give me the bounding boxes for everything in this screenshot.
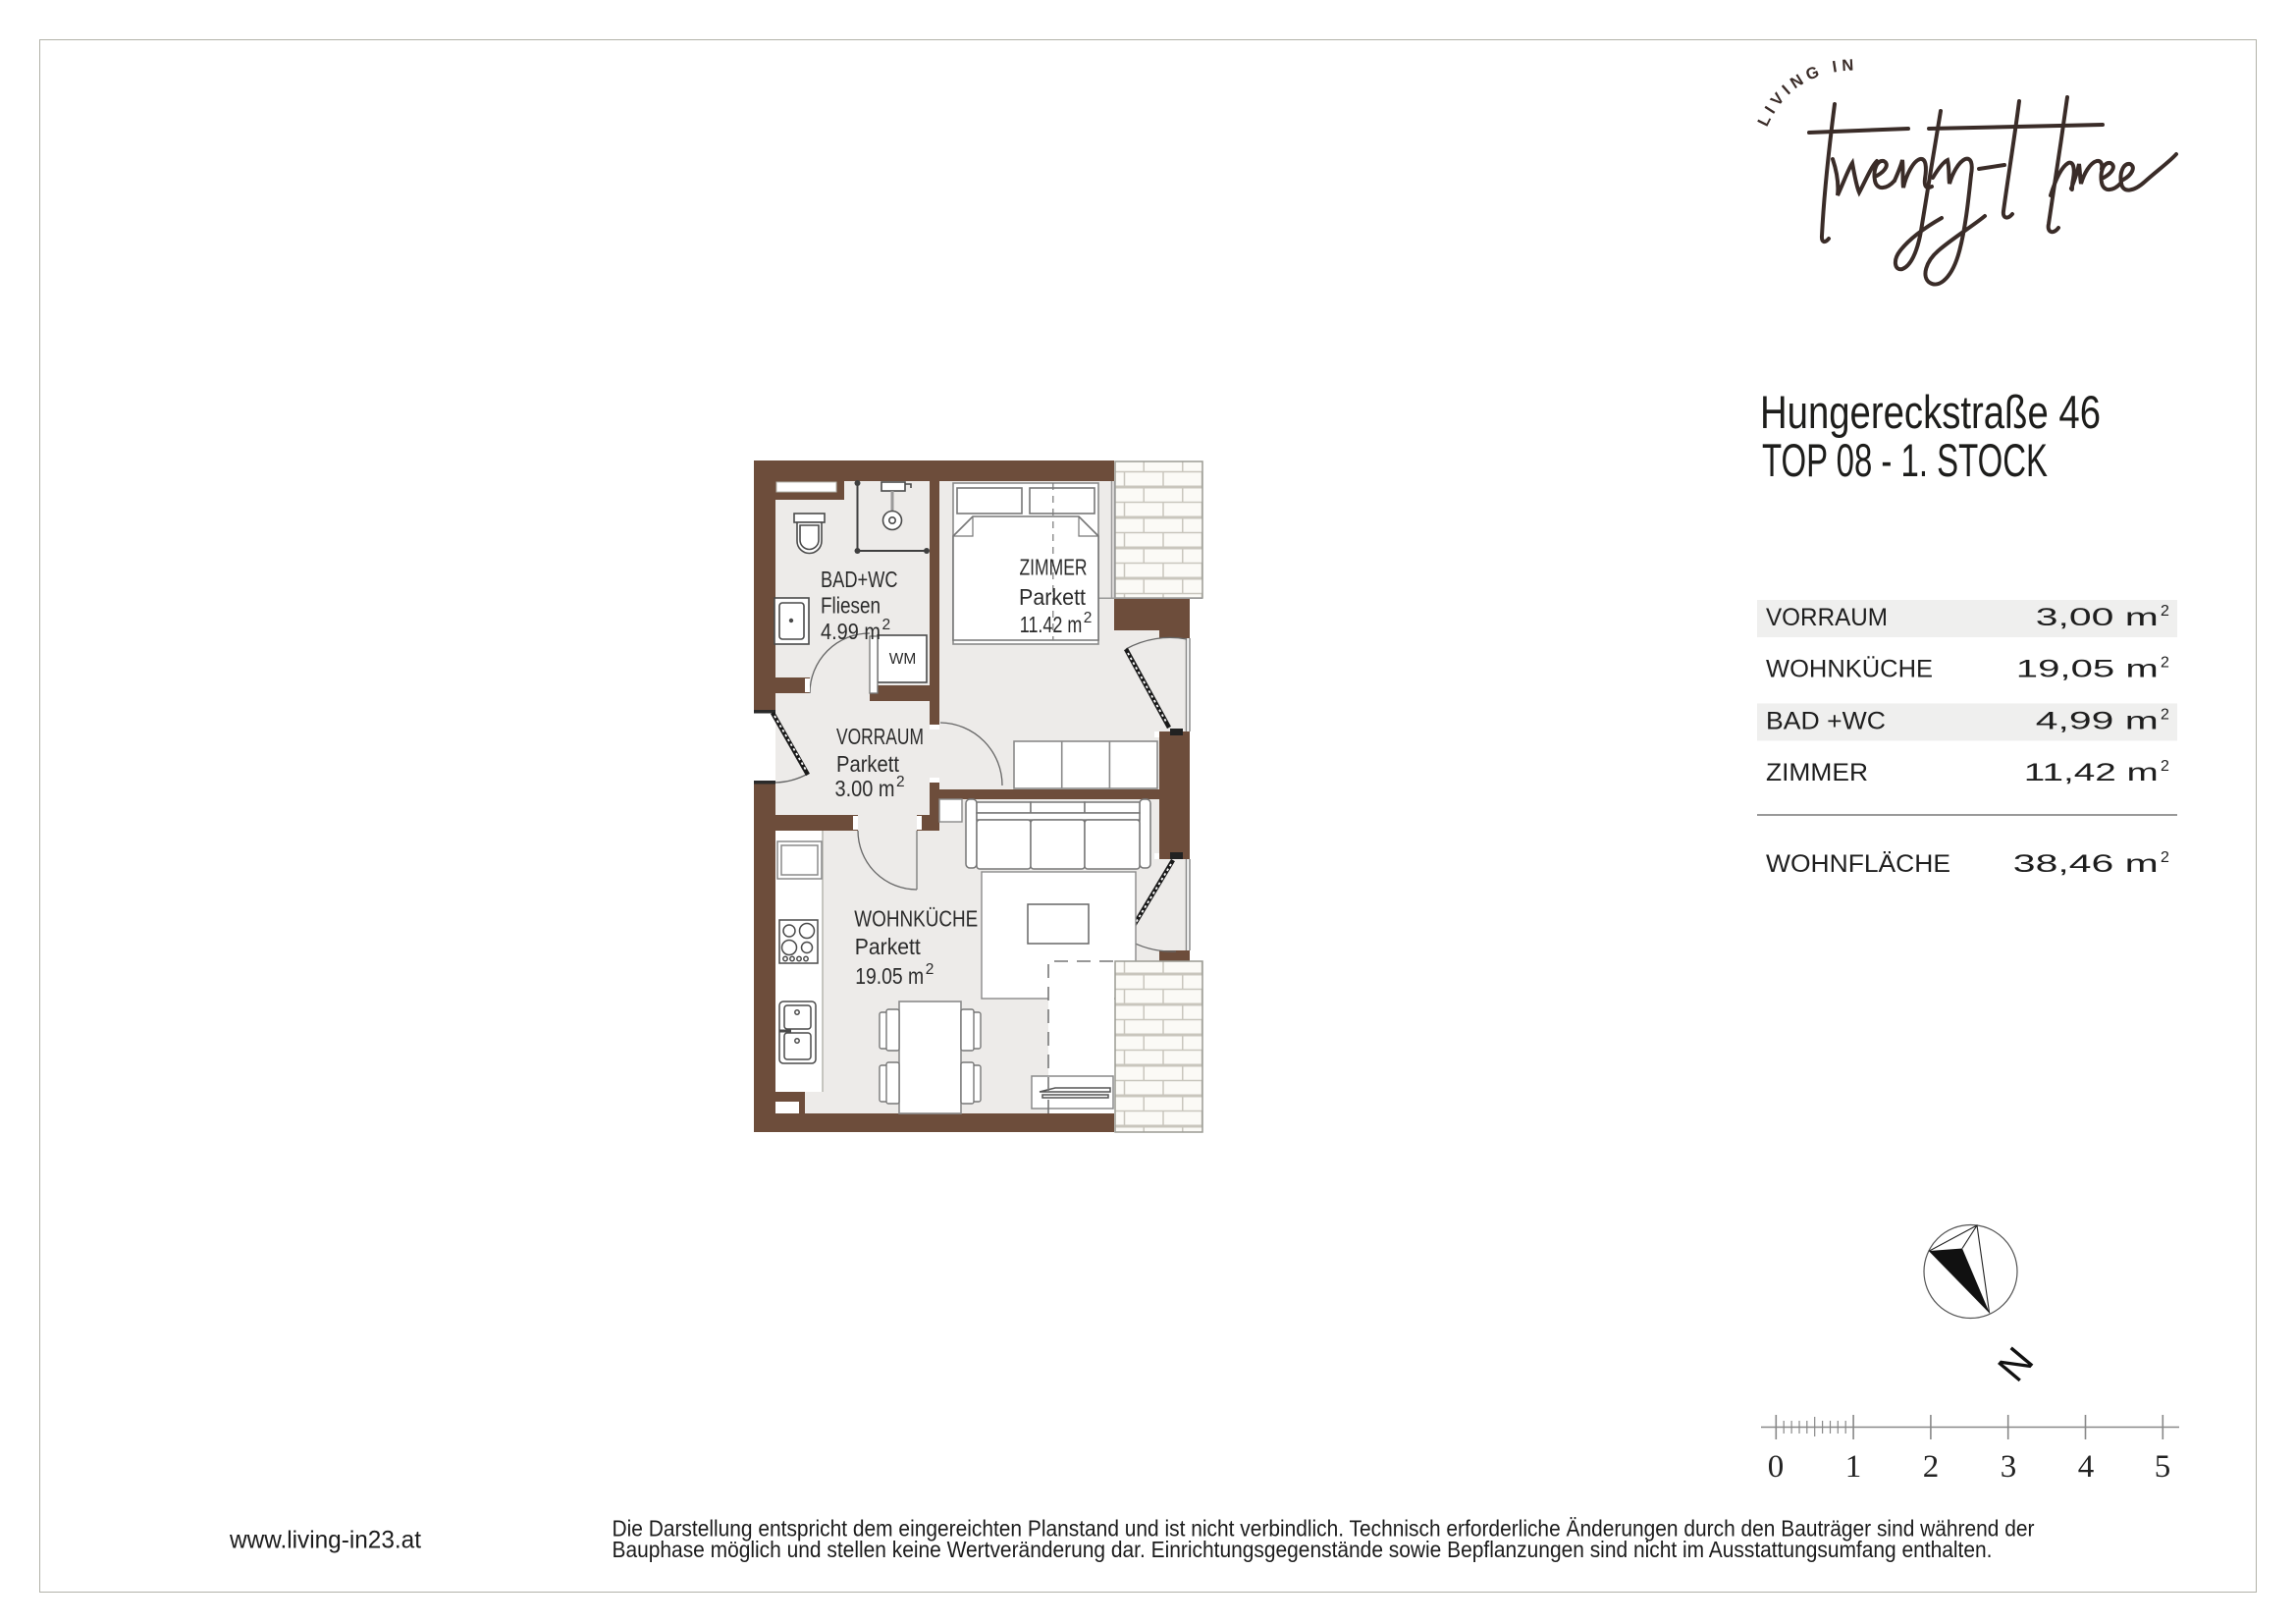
svg-text:2: 2 <box>1923 1449 1940 1485</box>
svg-text:0: 0 <box>1768 1449 1785 1485</box>
svg-text:N: N <box>1989 1338 2042 1389</box>
svg-text:11.42 m: 11.42 m <box>1020 612 1083 637</box>
svg-text:Parkett: Parkett <box>855 934 921 959</box>
svg-text:2: 2 <box>882 617 891 633</box>
svg-text:2: 2 <box>2161 849 2169 866</box>
svg-text:BAD +WC: BAD +WC <box>1766 707 1886 734</box>
svg-text:WM: WM <box>889 651 917 668</box>
svg-text:4: 4 <box>2078 1449 2095 1485</box>
svg-text:VORRAUM: VORRAUM <box>1766 604 1888 631</box>
svg-text:4.99 m: 4.99 m <box>821 619 881 644</box>
svg-text:4,99 m: 4,99 m <box>2036 707 2159 734</box>
svg-text:2: 2 <box>2161 706 2169 723</box>
svg-text:Hungereckstraße 46: Hungereckstraße 46 <box>1760 386 2101 438</box>
svg-text:Bauphase möglich und stellen k: Bauphase möglich und stellen keine Wertv… <box>613 1537 1993 1562</box>
svg-text:WOHNFLÄCHE: WOHNFLÄCHE <box>1766 850 1950 878</box>
svg-text:Parkett: Parkett <box>1019 584 1086 610</box>
svg-text:5: 5 <box>2155 1449 2171 1485</box>
svg-text:Fliesen: Fliesen <box>821 593 881 619</box>
svg-text:11,42 m: 11,42 m <box>2024 759 2159 786</box>
svg-text:2: 2 <box>2161 603 2169 620</box>
svg-text:VORRAUM: VORRAUM <box>836 724 924 749</box>
svg-text:Parkett: Parkett <box>836 751 899 777</box>
svg-text:WOHNKÜCHE: WOHNKÜCHE <box>1766 656 1933 683</box>
svg-text:ZIMMER: ZIMMER <box>1020 555 1088 580</box>
svg-text:1: 1 <box>1845 1449 1862 1485</box>
svg-text:2: 2 <box>1084 610 1093 626</box>
svg-text:www.living-in23.at: www.living-in23.at <box>229 1526 421 1553</box>
svg-text:3,00 m: 3,00 m <box>2036 604 2159 631</box>
svg-text:TOP 08 - 1. STOCK: TOP 08 - 1. STOCK <box>1762 434 2048 486</box>
svg-text:LIVING IN: LIVING IN <box>1754 56 1858 129</box>
svg-text:19,05 m: 19,05 m <box>2016 656 2159 683</box>
svg-text:3: 3 <box>2001 1449 2017 1485</box>
svg-text:19.05 m: 19.05 m <box>855 963 924 989</box>
svg-text:2: 2 <box>2161 758 2169 775</box>
svg-text:2: 2 <box>926 961 934 978</box>
svg-text:BAD+WC: BAD+WC <box>821 567 898 592</box>
svg-text:38,46 m: 38,46 m <box>2013 850 2159 878</box>
svg-text:2: 2 <box>896 774 905 790</box>
svg-text:3.00 m: 3.00 m <box>835 776 895 801</box>
svg-text:WOHNKÜCHE: WOHNKÜCHE <box>854 906 978 932</box>
svg-text:ZIMMER: ZIMMER <box>1766 759 1868 786</box>
svg-text:2: 2 <box>2161 655 2169 672</box>
